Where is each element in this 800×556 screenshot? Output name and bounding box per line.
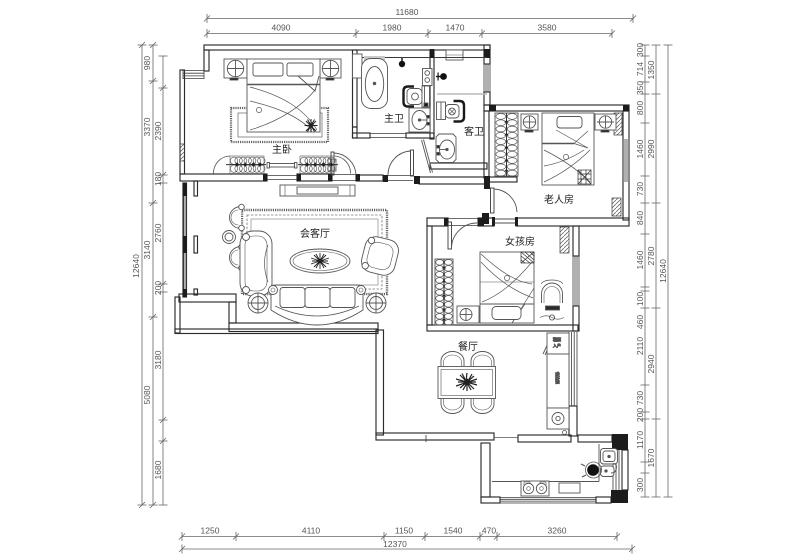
svg-text:4090: 4090: [272, 23, 291, 33]
svg-text:会客厅: 会客厅: [300, 227, 330, 240]
svg-text:老人房: 老人房: [544, 193, 574, 206]
svg-text:730: 730: [635, 182, 645, 196]
svg-text:2760: 2760: [153, 223, 163, 242]
svg-text:3140: 3140: [142, 240, 152, 259]
svg-text:1980: 1980: [383, 23, 402, 33]
svg-text:4110: 4110: [302, 526, 321, 536]
svg-text:12640: 12640: [131, 254, 141, 278]
svg-text:12640: 12640: [658, 259, 668, 283]
svg-text:餐厅: 餐厅: [458, 340, 478, 353]
svg-text:入户: 入户: [553, 342, 561, 348]
svg-text:1670: 1670: [646, 448, 656, 467]
svg-text:2390: 2390: [153, 121, 163, 140]
svg-text:3370: 3370: [142, 117, 152, 136]
svg-text:1540: 1540: [444, 526, 463, 536]
svg-text:200: 200: [153, 281, 163, 295]
svg-text:460: 460: [635, 315, 645, 329]
svg-text:2110: 2110: [635, 337, 645, 356]
svg-text:3260: 3260: [548, 526, 567, 536]
svg-text:980: 980: [142, 56, 152, 70]
svg-text:714: 714: [635, 62, 645, 76]
svg-text:1680: 1680: [153, 460, 163, 479]
svg-text:840: 840: [635, 211, 645, 225]
svg-text:鞋柜: 鞋柜: [553, 336, 561, 342]
svg-text:200: 200: [635, 408, 645, 422]
svg-text:2780: 2780: [646, 246, 656, 265]
svg-text:1250: 1250: [201, 526, 220, 536]
svg-text:3180: 3180: [153, 350, 163, 369]
svg-text:主卧: 主卧: [272, 143, 292, 156]
svg-text:11680: 11680: [395, 7, 418, 17]
svg-text:2940: 2940: [646, 354, 656, 373]
svg-text:客卫: 客卫: [464, 125, 484, 138]
svg-text:350: 350: [635, 81, 645, 95]
svg-text:1460: 1460: [635, 139, 645, 158]
svg-text:1460: 1460: [635, 250, 645, 269]
svg-text:5080: 5080: [142, 385, 152, 404]
svg-text:女孩房: 女孩房: [505, 235, 535, 248]
svg-text:1170: 1170: [635, 431, 645, 450]
svg-text:180: 180: [153, 172, 163, 186]
svg-text:主卫: 主卫: [384, 113, 404, 125]
svg-text:470: 470: [482, 526, 496, 536]
svg-text:1150: 1150: [395, 526, 414, 536]
svg-text:2990: 2990: [646, 139, 656, 158]
svg-text:300: 300: [635, 478, 645, 492]
svg-text:730: 730: [635, 391, 645, 405]
svg-text:300: 300: [635, 43, 645, 57]
svg-text:800: 800: [635, 101, 645, 115]
svg-text:100: 100: [635, 292, 645, 306]
svg-text:餐边柜: 餐边柜: [555, 372, 561, 384]
svg-text:1470: 1470: [446, 23, 465, 33]
svg-text:1350: 1350: [646, 60, 656, 79]
svg-text:12370: 12370: [383, 539, 407, 549]
svg-text:3580: 3580: [538, 23, 557, 33]
